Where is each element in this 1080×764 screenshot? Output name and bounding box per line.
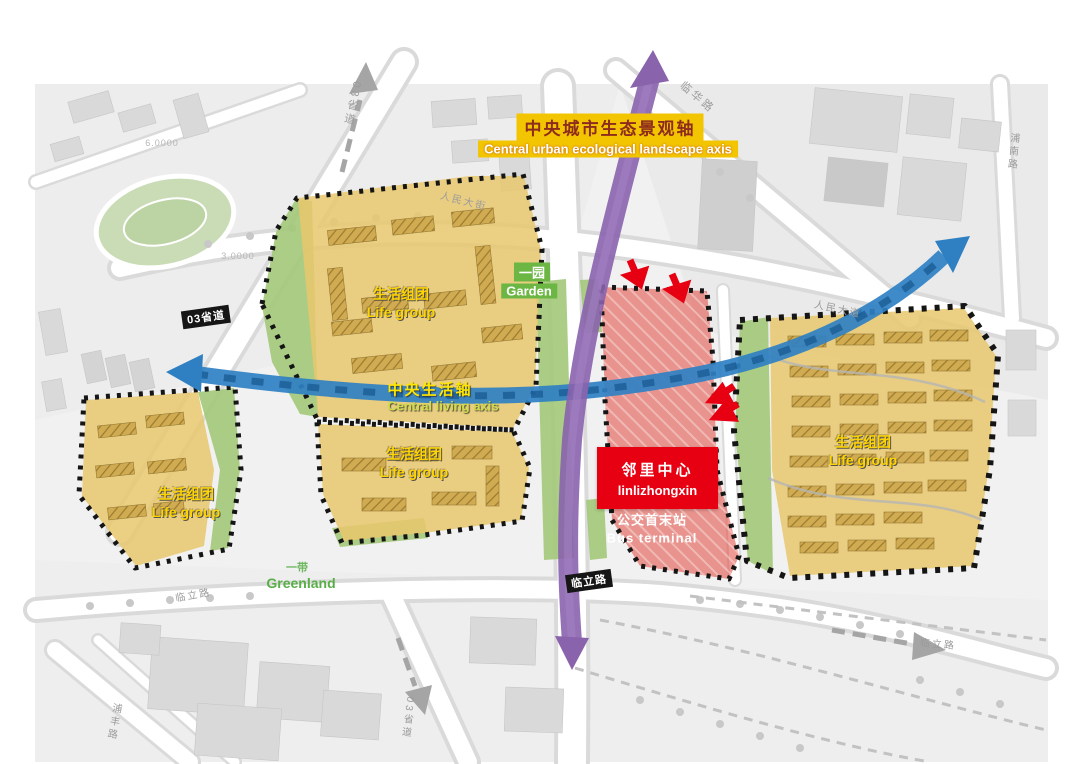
neighborhood-center-box: 邻里中心 linlizhongxin — [597, 447, 718, 509]
neighborhood-center-en: linlizhongxin — [618, 483, 697, 498]
map-canvas — [0, 0, 1080, 764]
neighborhood-center-zh: 邻里中心 — [621, 459, 693, 480]
masterplan-diagram: 中央城市生态景观轴 Central urban ecological lands… — [0, 0, 1080, 764]
